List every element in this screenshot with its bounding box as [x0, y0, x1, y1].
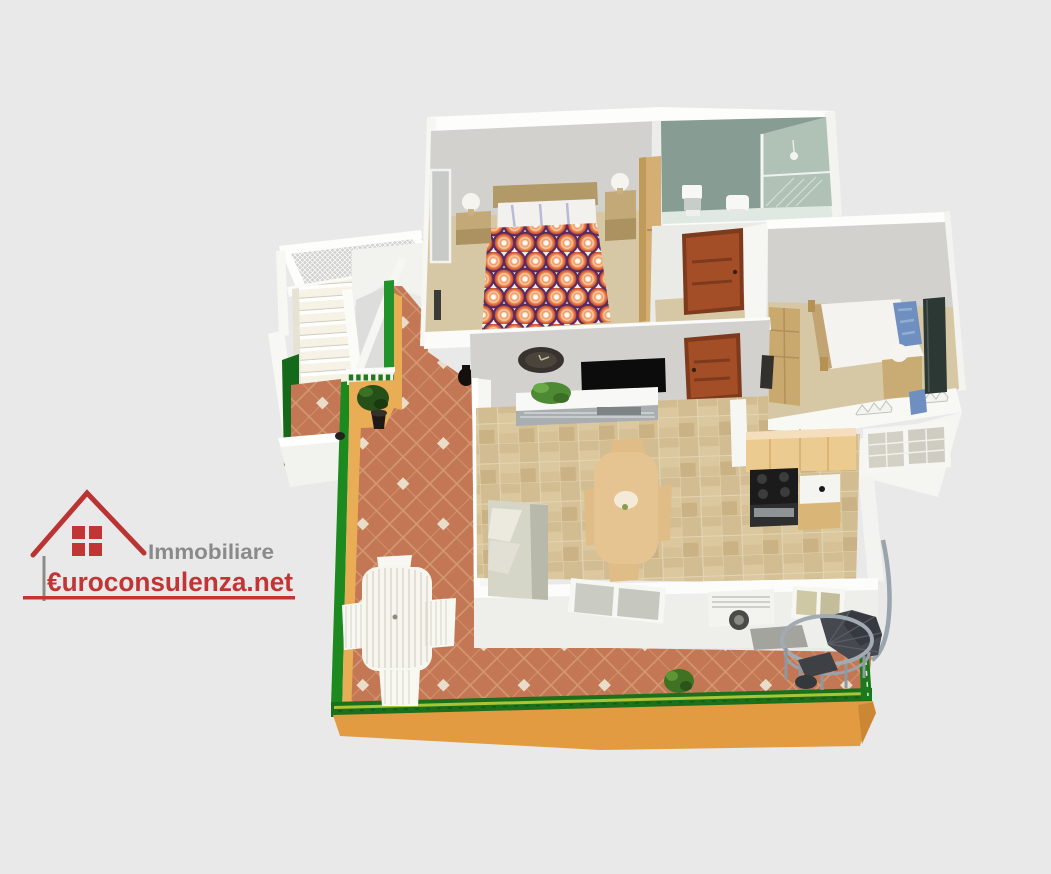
svg-text:Immobiliare: Immobiliare [148, 541, 274, 564]
svg-text:€uroconsulenza.net: €uroconsulenza.net [47, 567, 293, 597]
